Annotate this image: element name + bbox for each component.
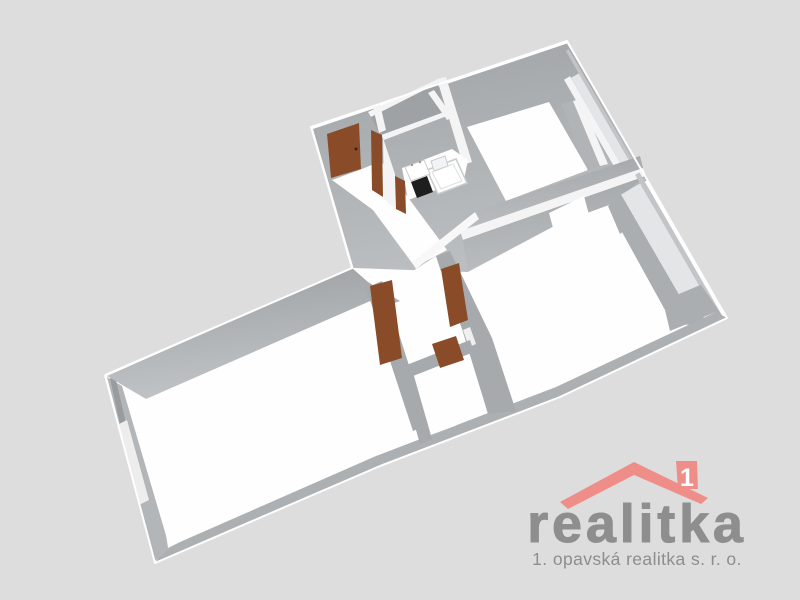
svg-text:1: 1 xyxy=(680,464,694,492)
svg-text:realitka: realitka xyxy=(527,494,747,554)
svg-text:1. opavská realitka s. r. o.: 1. opavská realitka s. r. o. xyxy=(532,549,742,569)
